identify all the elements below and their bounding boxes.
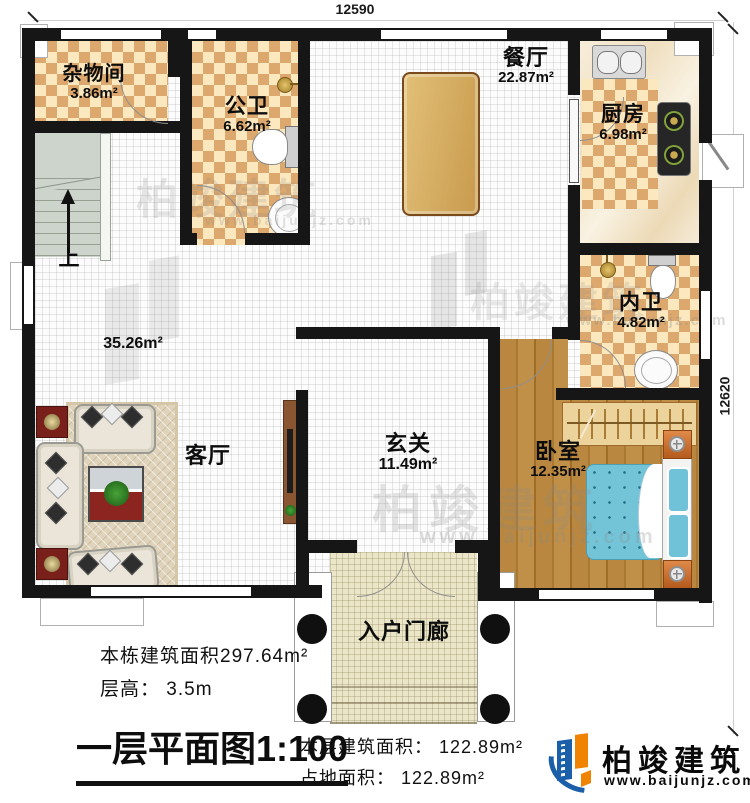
window [22,265,35,325]
room-label-dining: 餐厅 22.87m² [498,46,554,86]
plant-icon [285,505,296,516]
stair-arrow-head [61,189,75,204]
note-building-area: 本栋建筑面积297.64m² [100,641,308,668]
wall [22,28,35,265]
watermark-logo-icon [425,232,505,332]
porch-step [330,686,477,688]
room-area: 6.62m² [223,119,271,135]
stove [657,102,691,176]
window [90,585,252,598]
window [60,28,162,41]
exterior-pad [656,601,714,627]
wall [699,180,712,290]
wall [22,325,35,598]
sink-basin [597,51,619,74]
logo-tower-orange [575,733,588,769]
wall [180,233,197,245]
nightstand [663,430,692,459]
wall [296,553,309,598]
room-name: 杂物间 [63,64,126,86]
window [538,588,655,601]
wall [556,388,712,400]
wall [296,327,500,339]
room-area: 6.98m² [599,127,647,143]
wall [655,588,712,601]
window [380,28,508,41]
room-area: 3.86m² [63,86,126,102]
room-name: 餐厅 [498,46,554,70]
wall [699,28,712,143]
bath-sink [634,350,678,390]
side-table [36,406,68,438]
room-name: 卧室 [530,440,586,464]
wall [296,390,308,552]
note-footprint-area: 占地面积： 122.89m² [300,764,485,790]
wall [552,327,568,339]
right-dimension-label: 12620 [716,377,732,416]
room-area-living: 35.26m² [103,335,163,352]
watermark-bar [465,230,487,296]
room-area: 12.35m² [530,464,586,480]
watermark-bar [105,283,139,385]
window [600,28,668,41]
logo-windows [561,744,565,777]
wall [568,185,580,243]
wall [168,41,180,77]
wall [252,585,322,598]
lamp-icon [669,566,685,582]
wall [217,28,380,41]
room-name: 内卫 [617,292,665,315]
note-floor-area: 本层建筑面积： 122.89m² [300,733,523,759]
porch-column [480,614,510,644]
company-logo-icon [545,734,595,790]
wall [568,41,580,95]
room-label-living: 客厅 [185,444,231,468]
sink-basin [641,357,672,384]
room-area: 4.82m² [617,315,665,331]
lamp-icon [44,414,60,430]
burner-icon [664,145,684,165]
kitchen-sink [592,45,646,79]
room-name: 玄关 [379,432,438,456]
room-label-storage: 杂物间 3.86m² [63,64,126,102]
lamp-icon [44,556,60,572]
tv-icon [287,429,293,493]
bed-headboard [662,458,692,562]
porch-column [297,614,327,644]
sink-basin [620,51,642,74]
wall [455,540,490,553]
room-label-foyer: 玄关 11.49m² [379,432,438,473]
right-dimension-wrap: 12620 [697,368,750,424]
side-table [36,548,68,580]
watermark-logo-icon [95,258,205,388]
room-label-public-bath: 公卫 6.62m² [223,96,271,135]
top-dimension-line [33,20,725,21]
nightstand [663,560,692,589]
logo-notch [581,770,591,787]
company-website: www.baijunjz.com [604,772,750,788]
window [187,28,217,41]
logo-tower-blue [557,739,572,781]
wall [298,41,310,245]
wall [22,585,90,598]
watermark-bar [149,255,179,342]
coffee-table [88,466,144,522]
wall [180,41,192,245]
lamp-icon [669,436,685,452]
room-name: 厨房 [599,104,647,127]
window [699,290,712,360]
kitchen-door-leaf [569,99,579,183]
dining-table [402,72,480,216]
room-area: 11.49m² [379,456,438,473]
stair-handrail [100,133,111,261]
watermark-bar [431,252,457,331]
note-floor-height: 层高： 3.5m [100,674,213,701]
stair-direction-label: 上 [59,248,80,271]
room-label-kitchen: 厨房 6.98m² [599,104,647,143]
pillow [667,467,690,513]
porch-column [480,694,510,724]
wall [508,28,600,41]
shower-icon [277,77,293,93]
room-label-porch: 入户门廊 [358,620,450,644]
floor-plan-canvas: 12590 12620 上 [0,0,750,803]
porch-step [330,702,477,704]
wall [568,255,580,340]
room-label-bedroom: 卧室 12.35m² [530,440,586,480]
plant-icon [104,481,129,506]
pillow [667,513,690,559]
wall [568,243,712,255]
wall [162,28,187,41]
stair-arrow-shaft [67,203,70,253]
top-dimension-label: 12590 [336,1,375,17]
burner-icon [664,111,684,131]
exterior-pad [40,598,144,626]
room-label-inner-bath: 内卫 4.82m² [617,292,665,331]
wall [488,339,500,600]
room-name: 公卫 [223,96,271,119]
room-area: 22.87m² [498,70,554,86]
